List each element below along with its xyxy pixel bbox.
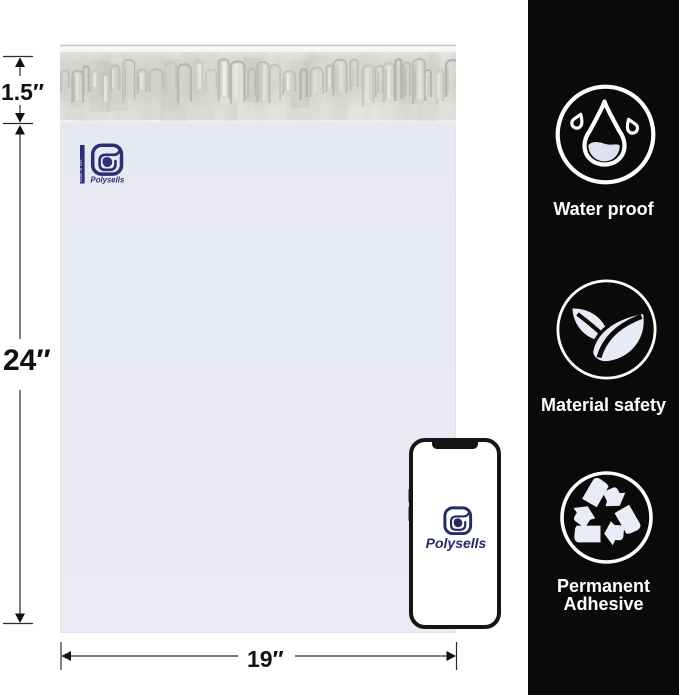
svg-text:MADE IN USA: MADE IN USA: [79, 159, 83, 182]
svg-text:Polysells: Polysells: [91, 175, 125, 184]
